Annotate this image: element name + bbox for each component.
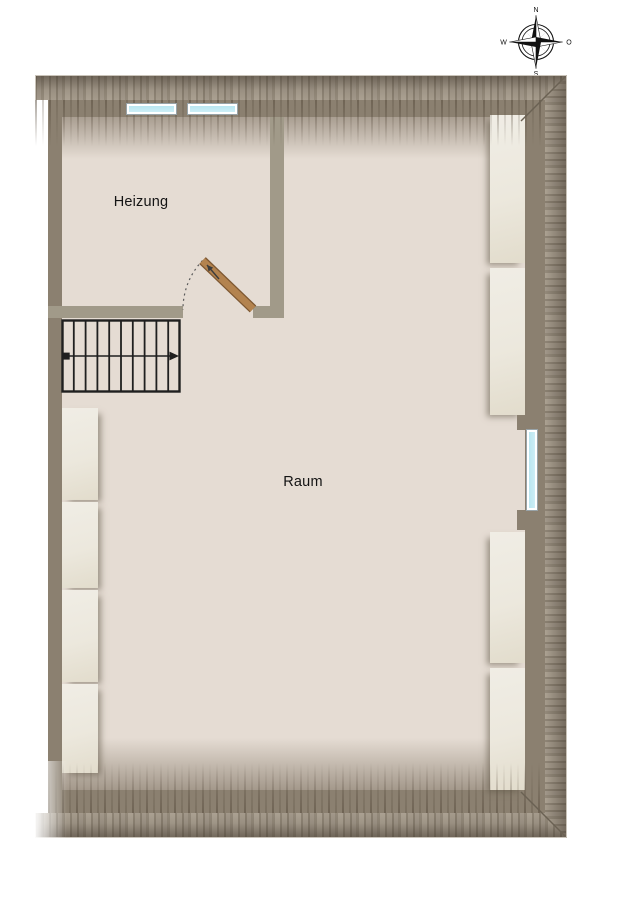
linework-overlay — [35, 75, 567, 838]
walking-line-arrow-icon — [170, 352, 180, 361]
walking-line-start-marker — [63, 353, 70, 360]
door — [183, 261, 253, 310]
floorplan: Heizung Raum — [35, 75, 567, 838]
compass-west-label: W — [500, 40, 507, 47]
compass-rose-icon: N O S W — [498, 2, 574, 78]
compass-north-label: N — [533, 7, 538, 14]
roof-hip-line-bottom-right — [521, 792, 566, 837]
floorplan-canvas: N O S W He — [0, 0, 636, 900]
compass-east-label: O — [566, 40, 572, 47]
roof-hip-line-top-right — [521, 77, 566, 122]
stairs — [63, 321, 180, 392]
door-swing-arc — [183, 261, 203, 310]
